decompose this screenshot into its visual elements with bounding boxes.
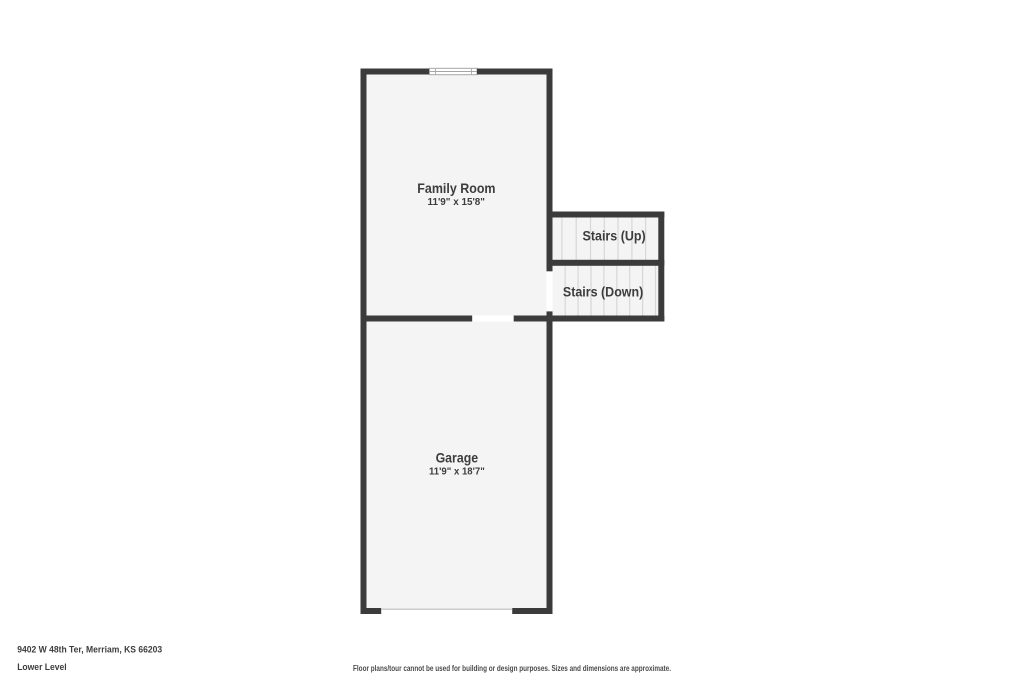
- svg-text:Stairs (Down): Stairs (Down): [563, 284, 643, 300]
- svg-text:Family Room: Family Room: [417, 180, 495, 196]
- svg-text:11'9" x 18'7": 11'9" x 18'7": [429, 466, 485, 478]
- svg-text:Stairs (Up): Stairs (Up): [583, 228, 646, 244]
- svg-text:Garage: Garage: [436, 450, 479, 466]
- svg-text:Floor plans/tour cannot be use: Floor plans/tour cannot be used for buil…: [353, 663, 671, 673]
- svg-text:Lower Level: Lower Level: [17, 662, 66, 673]
- svg-text:9402 W 48th Ter, Merriam, KS 6: 9402 W 48th Ter, Merriam, KS 66203: [17, 645, 162, 656]
- svg-text:11'9" x 15'8": 11'9" x 15'8": [428, 196, 486, 208]
